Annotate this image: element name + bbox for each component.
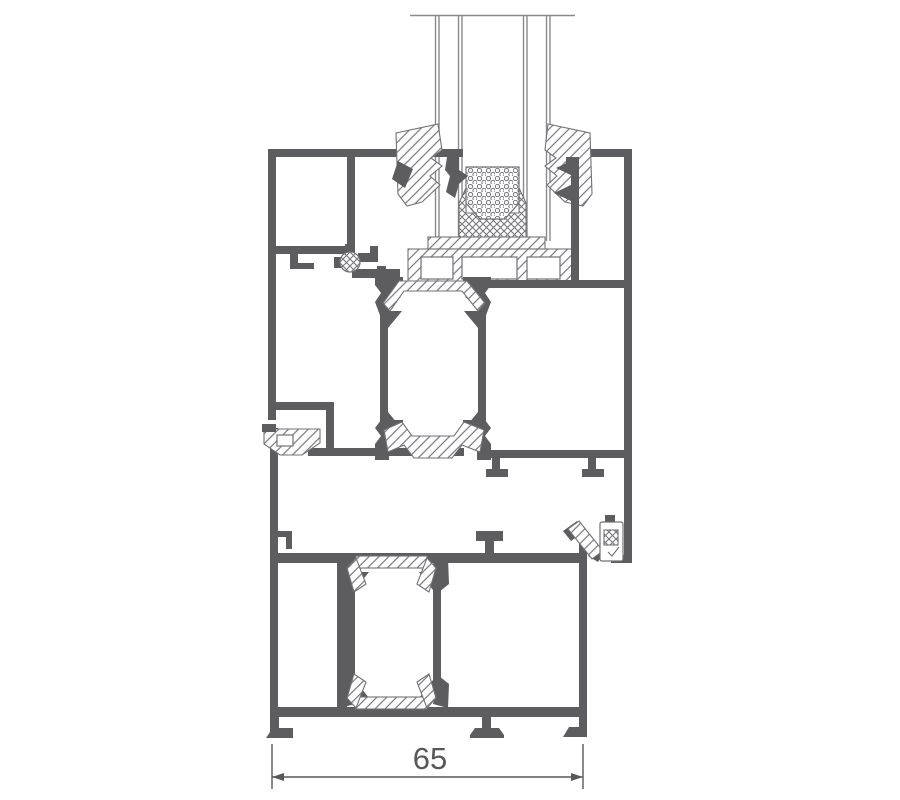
dimension-arrow-left — [272, 773, 284, 781]
support-block-hole — [421, 257, 453, 279]
support-block-hole — [527, 257, 560, 279]
dimension-label: 65 — [413, 741, 447, 776]
dimension-annotation: 65 — [272, 741, 583, 789]
profile-section-drawing: 65 — [0, 0, 900, 800]
bead-gasket-round-hatch — [340, 252, 360, 272]
glazing-setting-strip — [428, 237, 545, 249]
sash-profile — [268, 149, 632, 563]
glazing-spacer-desiccant — [466, 167, 519, 219]
frame-thermal-break — [347, 556, 436, 709]
frame-profile — [262, 424, 623, 738]
frame-aluminium-walls — [264, 428, 615, 738]
sash-aluminium-walls — [268, 149, 632, 563]
glass-pane-outer — [436, 16, 463, 241]
support-block-hole — [462, 257, 517, 279]
sash-thermal-break-top — [383, 281, 485, 311]
window-section-svg: 65 — [0, 0, 900, 800]
dimension-arrow-right — [571, 773, 583, 781]
glass-pane-inner — [524, 16, 551, 241]
